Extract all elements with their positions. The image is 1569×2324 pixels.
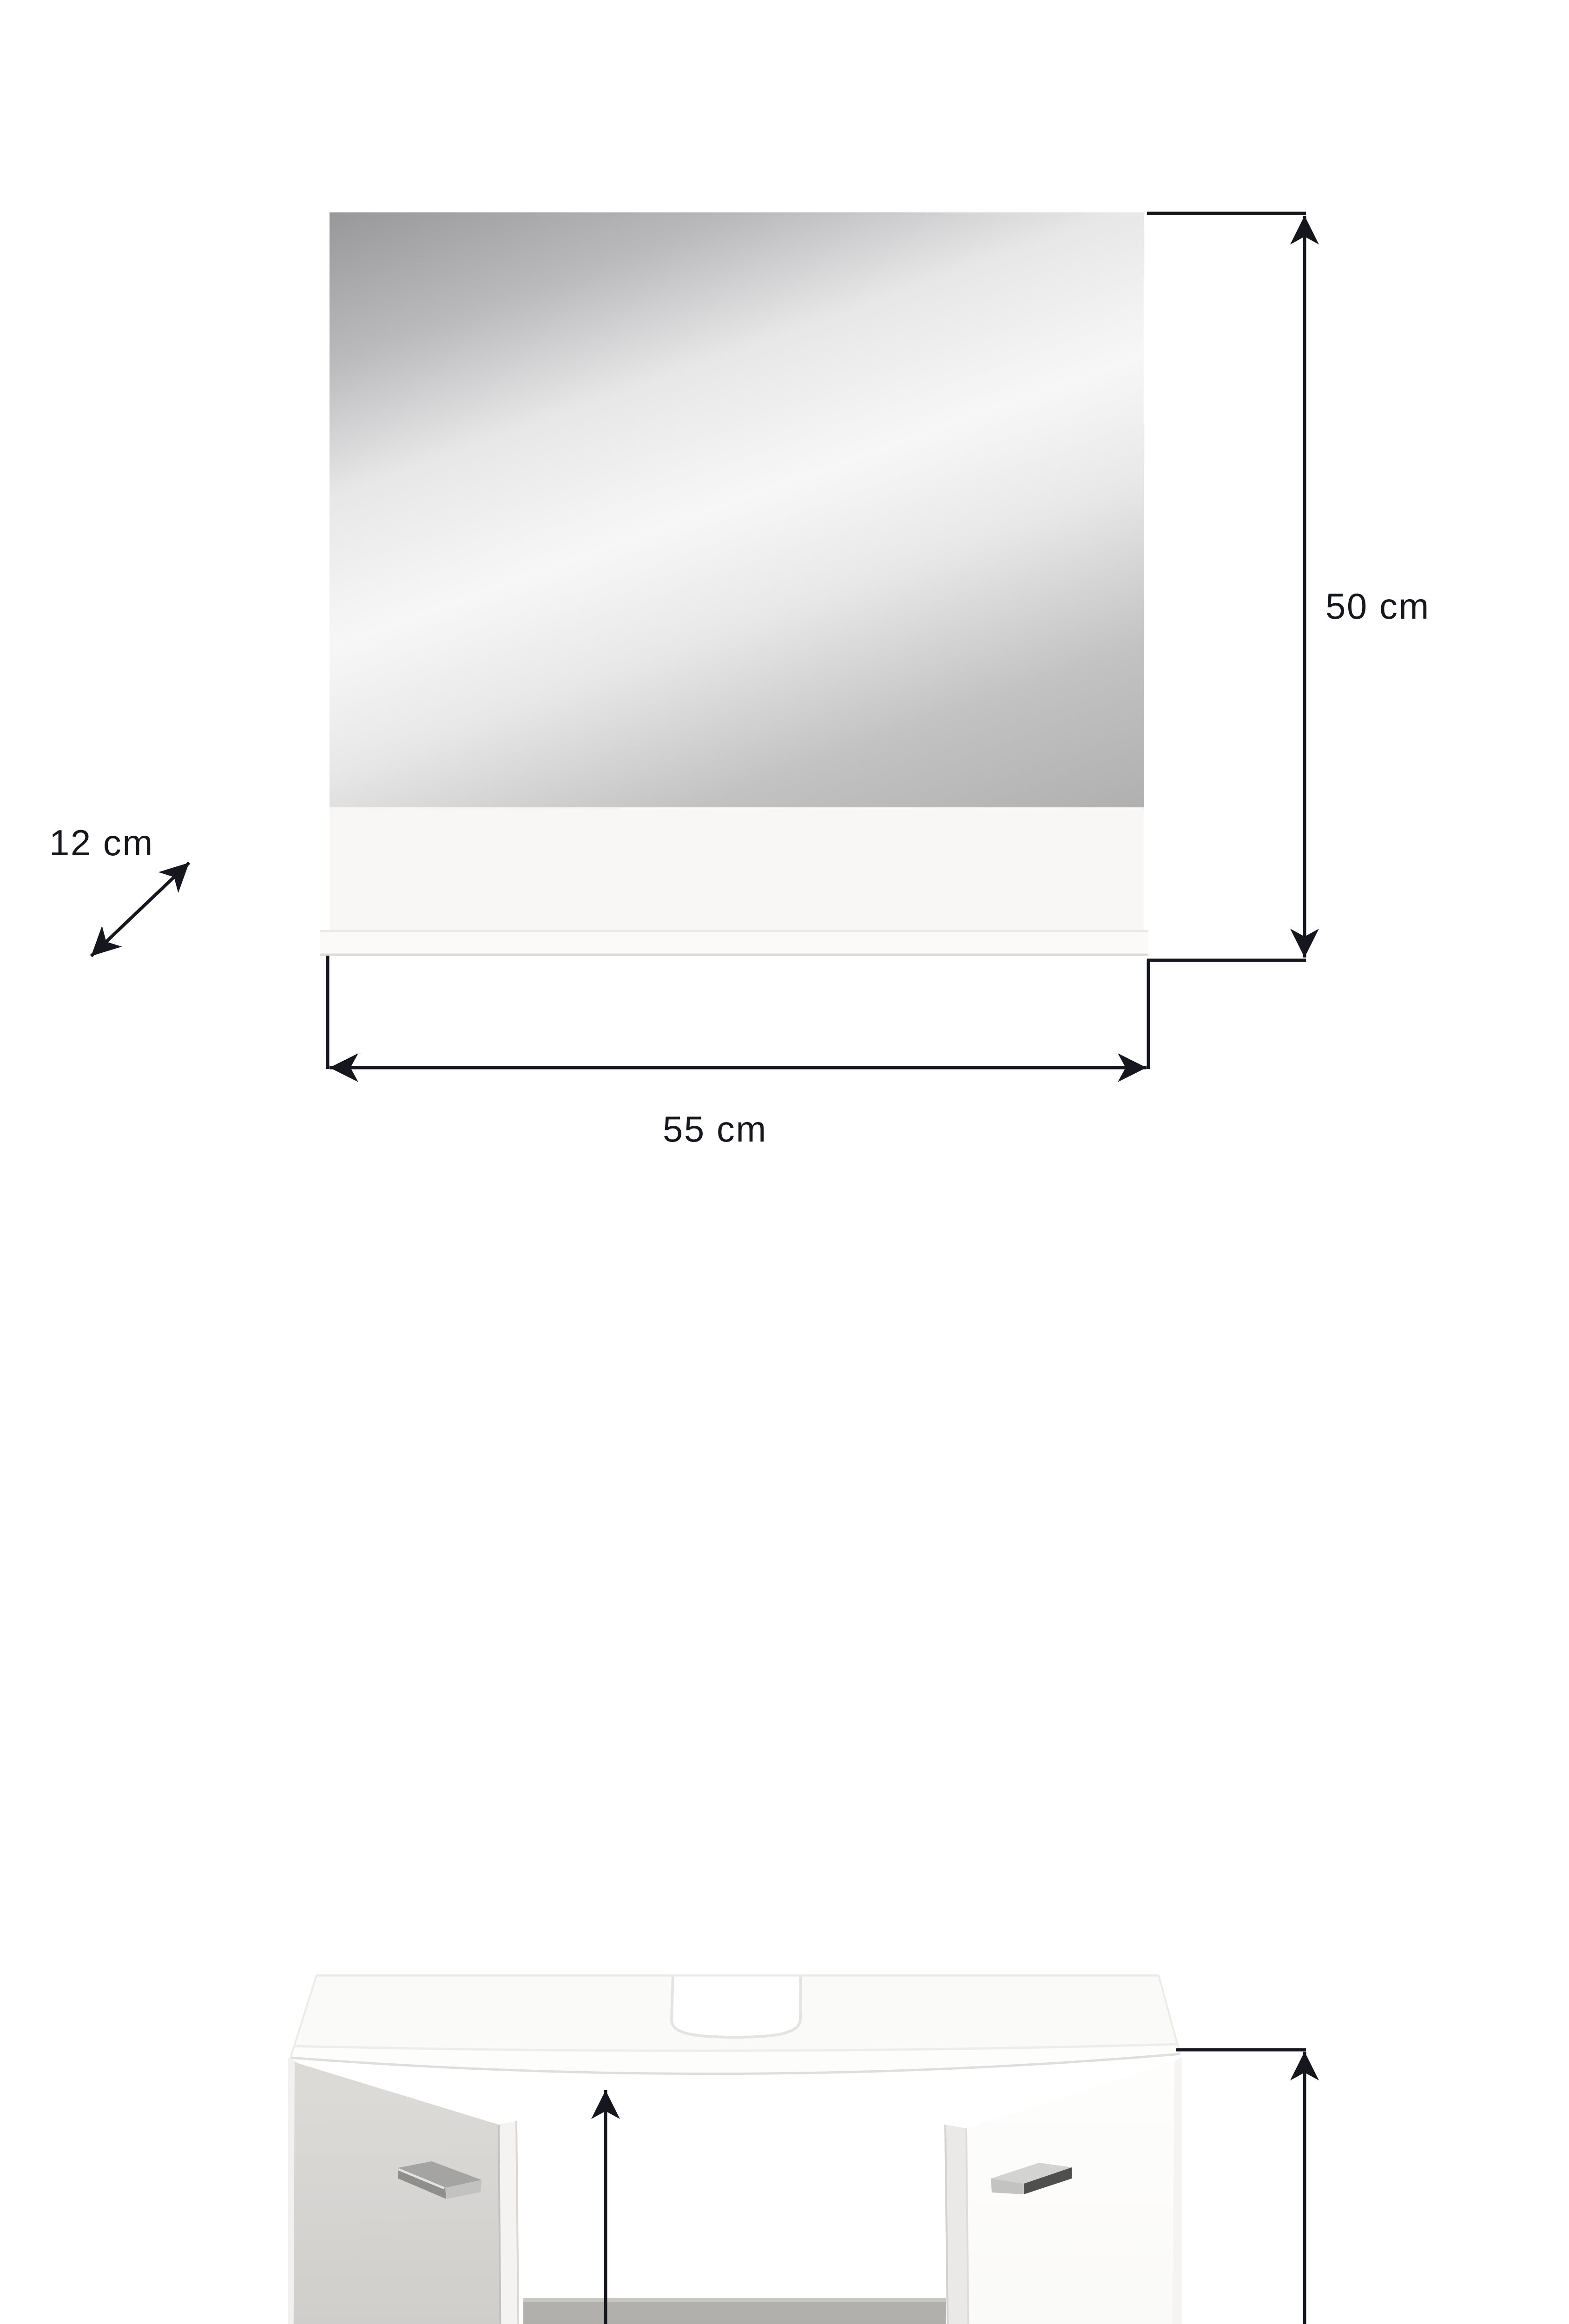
svg-text:50 cm: 50 cm xyxy=(1325,586,1430,627)
svg-text:55 cm: 55 cm xyxy=(663,1109,767,1149)
svg-text:12 cm: 12 cm xyxy=(49,822,154,863)
